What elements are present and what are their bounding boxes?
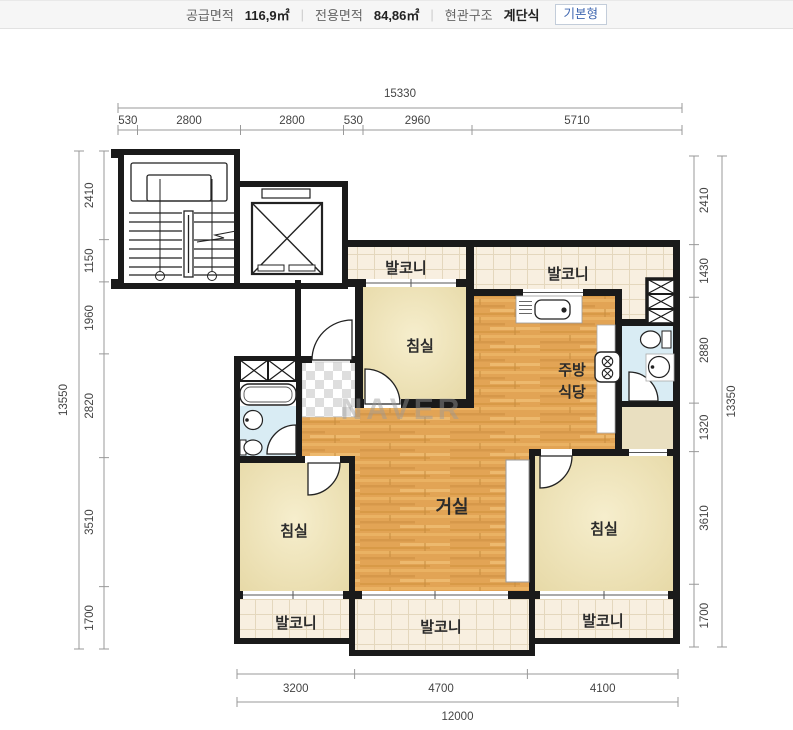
dim-left-total: 13550	[58, 384, 70, 416]
stove	[595, 352, 620, 382]
dim-bottom-total: 12000	[442, 711, 474, 723]
dim-bottom-2: 4100	[590, 683, 616, 695]
watermark: NAVER	[341, 393, 464, 426]
dim-left-4: 3510	[84, 509, 96, 535]
dim-left-2: 1960	[84, 305, 96, 331]
dim-top-total: 15330	[384, 88, 416, 100]
dim-top-2: 2800	[279, 115, 305, 127]
toilet-bowl	[641, 331, 661, 348]
dim-bottom-1: 4700	[428, 683, 454, 695]
dim-right-total: 13350	[726, 386, 738, 418]
dim-top-3: 530	[344, 115, 363, 127]
supply-area-label: 공급면적	[186, 5, 234, 24]
toilet-tank	[662, 331, 671, 348]
dim-top-5: 5710	[564, 115, 590, 127]
duct-shaft	[647, 279, 675, 324]
separator: |	[301, 7, 304, 22]
kitchen-label-line2: 식당	[558, 383, 586, 401]
window-dress	[629, 449, 667, 456]
dim-top-1: 2800	[176, 115, 202, 127]
dim-right-5: 1700	[699, 603, 711, 629]
dim-right-0: 2410	[699, 188, 711, 214]
summary-bar: 공급면적116,9㎡ | 전용면적84,86㎡ | 현관구조계단식 기본형	[0, 0, 793, 29]
dim-right-1: 1430	[699, 258, 711, 284]
window-living	[362, 591, 508, 599]
living-room-label: 거실	[435, 497, 468, 517]
shoe-closet	[240, 360, 296, 381]
toilet-bowl	[244, 440, 262, 455]
window-top-bedroom	[366, 279, 456, 287]
balcony-top-left-label: 발코니	[385, 260, 426, 277]
exclusive-area-value: 84,86㎡	[374, 5, 420, 24]
entrance-type-value: 계단식	[504, 5, 540, 24]
floor-plan: 발코니 발코니 침실 주방 식당 거실 침실 침실 발코니 발코니 발코니 NA…	[0, 29, 793, 725]
balcony-bottom-left-label: 발코니	[275, 615, 316, 632]
dim-left-0: 2410	[84, 183, 96, 209]
separator: |	[430, 7, 433, 22]
exclusive-area-label: 전용면적	[315, 5, 363, 24]
balcony-bottom-middle-label: 발코니	[420, 619, 461, 636]
bedroom-right-label: 침실	[590, 521, 618, 538]
dress-room-floor	[620, 406, 676, 452]
dim-left-3: 2820	[84, 393, 96, 419]
balcony-top-right-label: 발코니	[547, 266, 588, 283]
basic-type-badge[interactable]: 기본형	[555, 4, 608, 25]
dim-right-4: 3610	[699, 505, 711, 531]
living-closet	[506, 460, 529, 582]
dim-left-5: 1700	[84, 605, 96, 631]
front-door	[312, 320, 352, 360]
dim-right-3: 1320	[699, 415, 711, 441]
floorplan-area: 발코니 발코니 침실 주방 식당 거실 침실 침실 발코니 발코니 발코니 NA…	[0, 29, 793, 725]
staircase	[129, 163, 236, 281]
entrance-type-label: 현관구조	[445, 5, 493, 24]
balcony-right-strip-floor	[622, 291, 647, 322]
dim-left-1: 1150	[84, 248, 96, 273]
dim-top-0: 530	[118, 115, 137, 127]
window-kitchen	[523, 289, 583, 296]
stair-treads	[129, 213, 236, 275]
bedroom-left-label: 침실	[280, 523, 308, 540]
bedroom-top-label: 침실	[406, 338, 434, 355]
kitchen-label-line1: 주방	[558, 361, 586, 379]
dim-right-2: 2880	[699, 337, 711, 363]
faucet	[561, 307, 566, 312]
dim-bottom-0: 3200	[283, 683, 309, 695]
window-bedroom-left	[243, 591, 343, 599]
elevator	[252, 189, 322, 274]
dim-top-4: 2960	[405, 115, 431, 127]
room-fills	[238, 243, 676, 652]
balcony-bottom-right-label: 발코니	[582, 613, 623, 630]
supply-area-value: 116,9㎡	[245, 5, 290, 24]
window-bedroom-right	[540, 591, 668, 599]
